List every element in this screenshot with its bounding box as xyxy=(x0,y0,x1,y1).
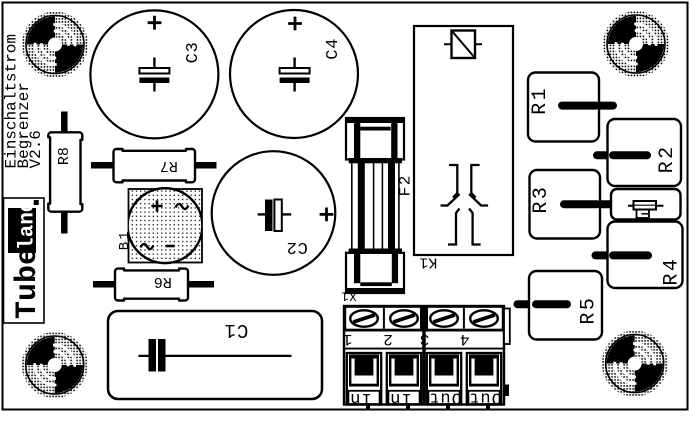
svg-text:In: In xyxy=(389,388,411,407)
svg-text:1: 1 xyxy=(343,330,353,348)
svg-text:Out: Out xyxy=(468,388,502,407)
svg-text:Tube: Tube xyxy=(11,247,45,319)
svg-text:R4: R4 xyxy=(660,257,683,286)
svg-text:X1: X1 xyxy=(341,289,357,304)
svg-text:C3: C3 xyxy=(184,41,203,63)
svg-text:C4: C4 xyxy=(324,38,343,60)
svg-text:V2.6: V2.6 xyxy=(27,130,45,168)
svg-text:In: In xyxy=(349,388,371,407)
svg-text:land: land xyxy=(17,200,40,250)
svg-text:R6: R6 xyxy=(154,273,172,290)
svg-text:C2: C2 xyxy=(286,237,308,256)
svg-text:K1: K1 xyxy=(419,253,437,270)
svg-text:R3: R3 xyxy=(530,185,553,214)
svg-text:C1: C1 xyxy=(224,319,249,341)
svg-text:4: 4 xyxy=(460,330,470,348)
svg-text:R8: R8 xyxy=(56,147,73,165)
svg-text:Out: Out xyxy=(428,388,462,407)
svg-text:R5: R5 xyxy=(577,296,600,325)
svg-text:R2: R2 xyxy=(656,144,679,173)
svg-text:2: 2 xyxy=(383,330,393,348)
svg-text:R7: R7 xyxy=(160,157,178,174)
svg-text:R1: R1 xyxy=(529,86,552,115)
svg-text:F2: F2 xyxy=(397,174,415,196)
svg-text:B1: B1 xyxy=(117,229,133,250)
